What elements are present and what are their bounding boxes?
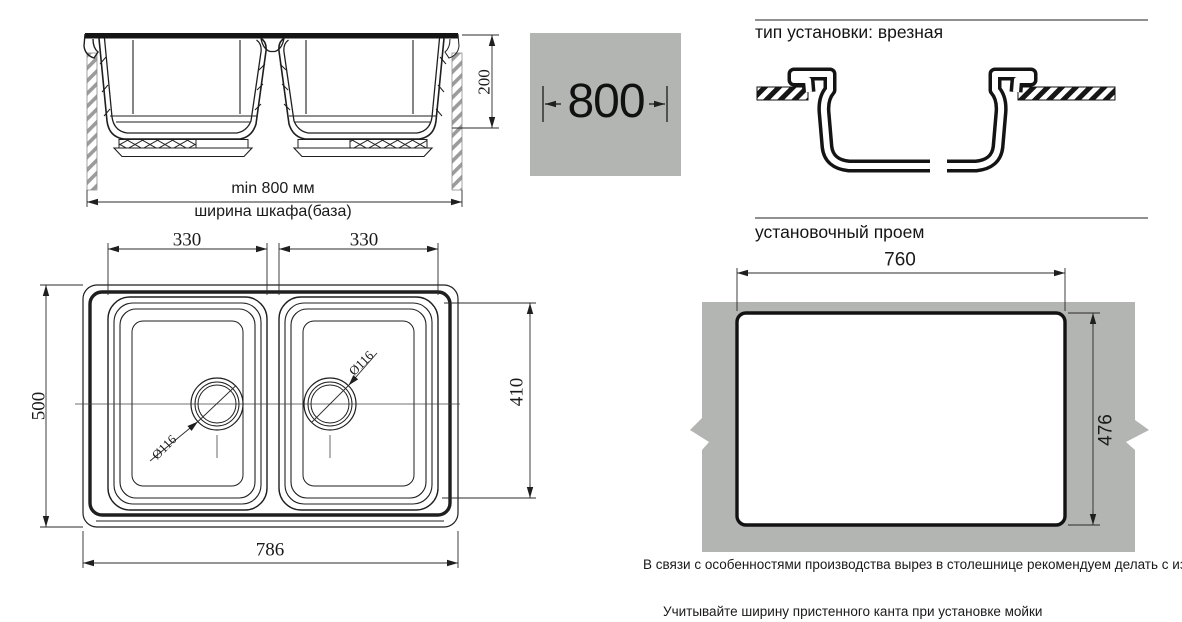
- cutout-opening: [737, 313, 1065, 525]
- dim-label-476: 476: [1097, 414, 1116, 446]
- note-wall-edge: Учитывайте ширину пристенного канта при …: [663, 604, 1042, 620]
- dim-330: [108, 243, 438, 295]
- mount-type-title: тип установки: врезная: [755, 22, 943, 42]
- dim-label-min-800: min 800 мм: [231, 181, 314, 197]
- top-view-drawing: [40, 243, 536, 568]
- dim-label-760: 760: [884, 251, 916, 270]
- sink-rim-profile: [794, 74, 1031, 166]
- dim-label-200: 200: [476, 69, 493, 95]
- cabinet-width-label: ширина шкафа(база): [194, 204, 351, 220]
- cabinet-wall-right: [452, 53, 462, 190]
- dim-label-330-right: 330: [350, 231, 379, 250]
- dim-label-500: 500: [30, 392, 49, 421]
- countertop-left: [757, 87, 808, 100]
- drain-leaders: [150, 353, 377, 461]
- opening-title: установочный проем: [755, 222, 924, 242]
- dim-label-410: 410: [508, 378, 527, 407]
- sink-rim-section: [85, 33, 458, 39]
- dim-label-330-left: 330: [173, 231, 202, 250]
- sink-rim-top: [90, 292, 450, 515]
- cutout-view-drawing: [690, 218, 1149, 552]
- cabinet-wall-left: [87, 53, 97, 190]
- dim-label-786: 786: [256, 541, 285, 560]
- countertop-right: [1018, 87, 1115, 100]
- note-production: В связи с особенностями производства выр…: [643, 557, 1182, 573]
- sink-technical-drawing-sheet: 200 min 800 мм ширина шкафа(база) 800 ти…: [0, 0, 1182, 622]
- size-box-label-800: 800: [567, 78, 644, 126]
